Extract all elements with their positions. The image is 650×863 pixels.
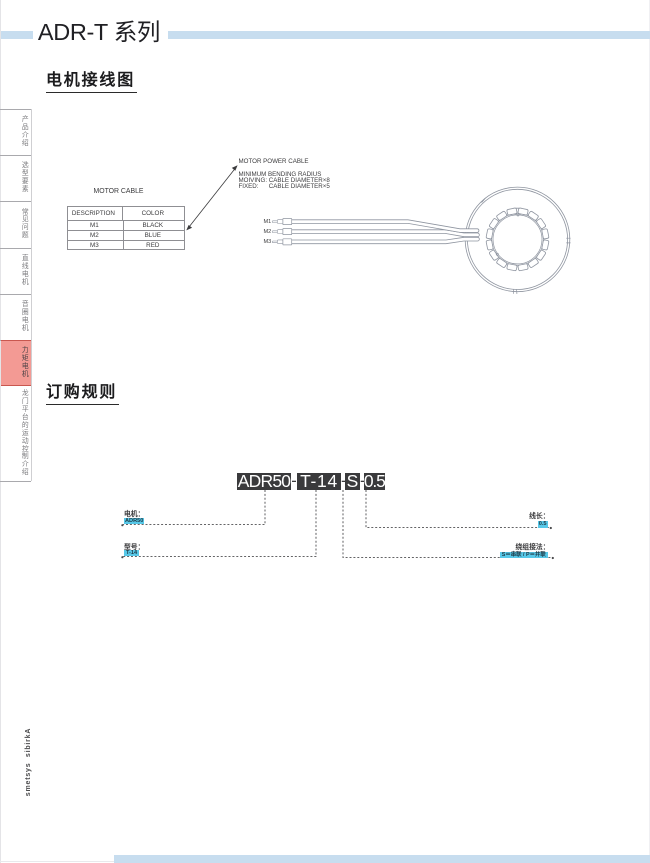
svg-text:smetsys sibirkA: smetsys sibirkA — [25, 728, 32, 796]
